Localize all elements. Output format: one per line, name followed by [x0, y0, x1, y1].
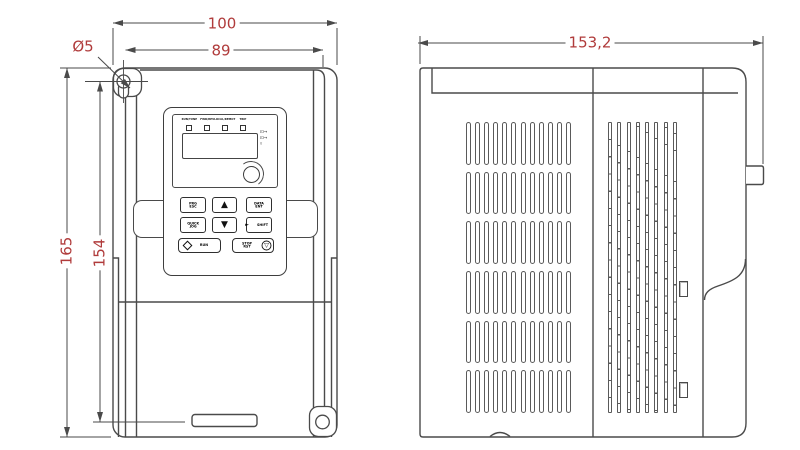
- vent-slot: [466, 221, 471, 264]
- data-ent-button: DATA ENT: [246, 197, 272, 213]
- vent-slot: [475, 122, 480, 165]
- dim-label-depth: 153,2: [566, 36, 615, 51]
- vent-slot: [530, 370, 535, 413]
- rear-mount-tab: [746, 166, 764, 185]
- heatsink-clip: [679, 382, 688, 398]
- up-arrow-icon: ▲: [221, 201, 228, 210]
- led-indicator-icon: [186, 125, 192, 131]
- vent-slot: [548, 321, 553, 364]
- vent-slot: [502, 221, 507, 264]
- vent-slot: [530, 122, 535, 165]
- quick-jog-button: QUICK JOG: [180, 217, 206, 233]
- vent-slot: [548, 172, 553, 215]
- vent-slot: [511, 221, 516, 264]
- vent-slot: [539, 122, 544, 165]
- vent-slot: [511, 172, 516, 215]
- led-label: LOCAL/REMOT: [214, 118, 235, 121]
- heatsink-fin: [645, 122, 649, 413]
- stop-symbol-icon: ▽: [262, 241, 272, 251]
- led-label: FWD/REV: [200, 118, 214, 121]
- vent-slot: [475, 321, 480, 364]
- heatsink-fin: [617, 122, 621, 413]
- vent-slot: [475, 271, 480, 314]
- vent-slot: [493, 271, 498, 314]
- vent-slot: [539, 221, 544, 264]
- led-indicator-icon: [204, 125, 210, 131]
- vent-slot: [566, 321, 571, 364]
- potentiometer-knob-icon: [243, 166, 260, 183]
- vent-slot: [530, 321, 535, 364]
- led-indicator-icon: [240, 125, 246, 131]
- led-trip: TRIP: [234, 118, 252, 132]
- heatsink-fin: [654, 122, 658, 413]
- vent-slot: [539, 321, 544, 364]
- side-view-drawing: [400, 0, 800, 450]
- dim-label-outer-width: 100: [205, 17, 240, 32]
- vent-slot: [493, 221, 498, 264]
- vent-slot: [521, 172, 526, 215]
- vent-slot: [557, 221, 562, 264]
- dim-label-outer-height: 165: [60, 234, 75, 269]
- vent-slot: [484, 271, 489, 314]
- led-label: TRIP: [240, 118, 247, 121]
- heatsink-fin: [608, 122, 612, 413]
- vent-slot: [557, 172, 562, 215]
- vent-slot: [566, 221, 571, 264]
- display-unit-indicator-icons: ⊡→ ⊡→ ▿: [260, 129, 270, 147]
- led-label: RUN/TUNE: [181, 118, 196, 121]
- prg-esc-button: PRG ESC: [180, 197, 206, 213]
- vent-slot: [502, 271, 507, 314]
- seven-segment-display: [182, 133, 258, 159]
- heatsink-fin: [627, 122, 631, 413]
- vent-slot: [511, 122, 516, 165]
- vent-slot: [548, 122, 553, 165]
- heatsink-fin: [664, 122, 668, 413]
- vent-slot: [521, 370, 526, 413]
- status-led-row: RUN/TUNE FWD/REV LOCAL/REMOT TRIP: [180, 118, 252, 132]
- vent-slot: [475, 172, 480, 215]
- vent-slot: [521, 271, 526, 314]
- vent-slot: [475, 221, 480, 264]
- data-ent-label: DATA ENT: [254, 201, 264, 208]
- vent-slot: [539, 271, 544, 314]
- led-run-tune: RUN/TUNE: [180, 118, 198, 132]
- up-arrow-button: ▲: [212, 197, 237, 213]
- vent-slot: [493, 172, 498, 215]
- vent-slot: [557, 370, 562, 413]
- vent-slot: [502, 172, 507, 215]
- shift-arrow-icon: ►: [245, 223, 249, 228]
- run-diamond-icon: [183, 241, 193, 251]
- led-local-remot: LOCAL/REMOT: [216, 118, 234, 132]
- vent-slot: [493, 321, 498, 364]
- bottom-notch-arc: [490, 433, 510, 437]
- dimension-drawing-canvas: 100 89 Ø5 165 154 153,2 RUN/TUNE FWD/REV…: [0, 0, 800, 450]
- dim-label-hole-diameter: Ø5: [71, 40, 94, 55]
- vent-slot: [521, 122, 526, 165]
- vent-slot: [566, 172, 571, 215]
- vent-slot: [466, 271, 471, 314]
- vent-slot: [511, 271, 516, 314]
- led-indicator-icon: [222, 125, 228, 131]
- ventilation-slot-grid: [464, 122, 573, 413]
- vent-slot: [530, 271, 535, 314]
- quick-jog-label: QUICK JOG: [187, 221, 199, 228]
- vent-slot: [548, 271, 553, 314]
- vent-slot: [484, 370, 489, 413]
- vent-slot: [548, 221, 553, 264]
- left-step-line: [113, 258, 119, 437]
- vent-slot: [539, 172, 544, 215]
- hole-crosshair: [85, 60, 148, 103]
- vent-slot: [521, 221, 526, 264]
- vent-slot: [530, 172, 535, 215]
- vent-slot: [502, 370, 507, 413]
- down-arrow-icon: ▼: [221, 221, 228, 230]
- heatsink-fin: [636, 122, 640, 413]
- keypad-right-release-tab: [286, 200, 318, 238]
- bottom-slot: [192, 415, 257, 427]
- heatsink-fin-area: [608, 122, 677, 413]
- vent-slot: [466, 122, 471, 165]
- vent-slot: [484, 122, 489, 165]
- keypad-left-release-tab: [133, 200, 165, 238]
- vent-slot: [539, 370, 544, 413]
- heatsink-fin: [673, 122, 677, 413]
- vent-slot: [466, 172, 471, 215]
- top-band-line: [432, 68, 738, 93]
- vent-slot: [484, 221, 489, 264]
- vent-slot: [557, 321, 562, 364]
- vent-slot: [475, 370, 480, 413]
- vent-slot: [484, 172, 489, 215]
- vent-slot: [466, 321, 471, 364]
- vent-slot: [466, 370, 471, 413]
- down-arrow-button: ▼: [212, 217, 237, 233]
- vent-slot: [566, 122, 571, 165]
- vent-slot: [521, 321, 526, 364]
- shift-button: ► SHIFT: [246, 217, 272, 233]
- vent-slot: [493, 370, 498, 413]
- vent-slot: [557, 271, 562, 314]
- heatsink-clip: [679, 281, 688, 297]
- vent-slot: [502, 122, 507, 165]
- dim-label-inner-width: 89: [208, 44, 233, 59]
- vent-slot: [530, 221, 535, 264]
- prg-esc-label: PRG ESC: [188, 201, 198, 208]
- vent-slot: [566, 370, 571, 413]
- vent-slot: [511, 370, 516, 413]
- vent-slot: [557, 122, 562, 165]
- run-label: RUN: [199, 244, 208, 248]
- vent-slot: [511, 321, 516, 364]
- stop-rst-label: STOP RST: [242, 242, 253, 249]
- bottom-right-mount-hole: [316, 415, 330, 429]
- rear-recess-curve: [705, 259, 746, 300]
- vent-slot: [484, 321, 489, 364]
- vent-slot: [566, 271, 571, 314]
- shift-label: SHIFT: [257, 223, 267, 227]
- dim-label-inner-height: 154: [93, 236, 108, 271]
- vent-slot: [493, 122, 498, 165]
- stop-rst-button: STOP RST ▽: [232, 238, 274, 253]
- vent-slot: [502, 321, 507, 364]
- vent-slot: [548, 370, 553, 413]
- run-button: RUN: [178, 238, 221, 253]
